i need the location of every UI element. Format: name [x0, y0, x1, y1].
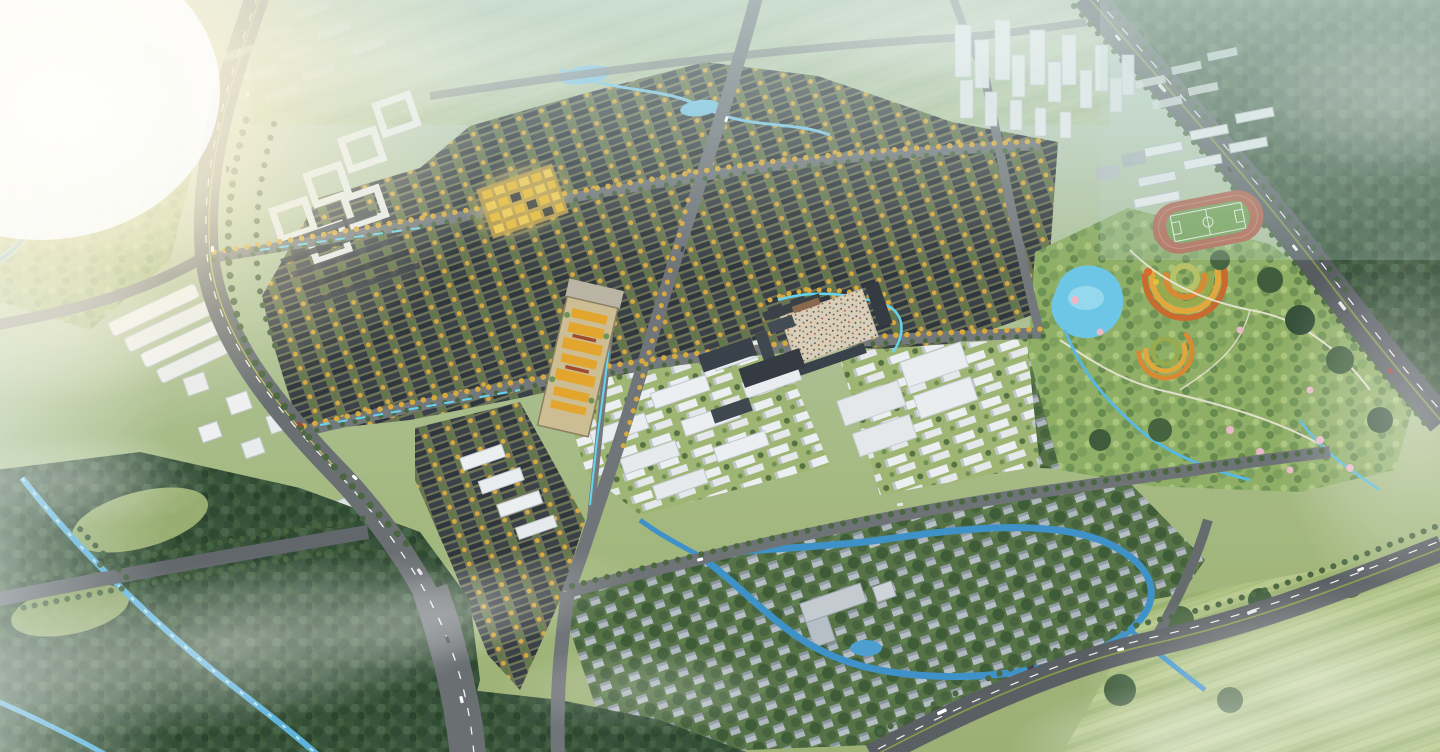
aerial-render: Bird's-eye architectural rendering of an… [0, 0, 1440, 752]
playground [1153, 279, 1159, 285]
masterplan-canvas [0, 0, 1440, 752]
stream-pond [850, 640, 882, 656]
mist-streak [490, 645, 790, 735]
